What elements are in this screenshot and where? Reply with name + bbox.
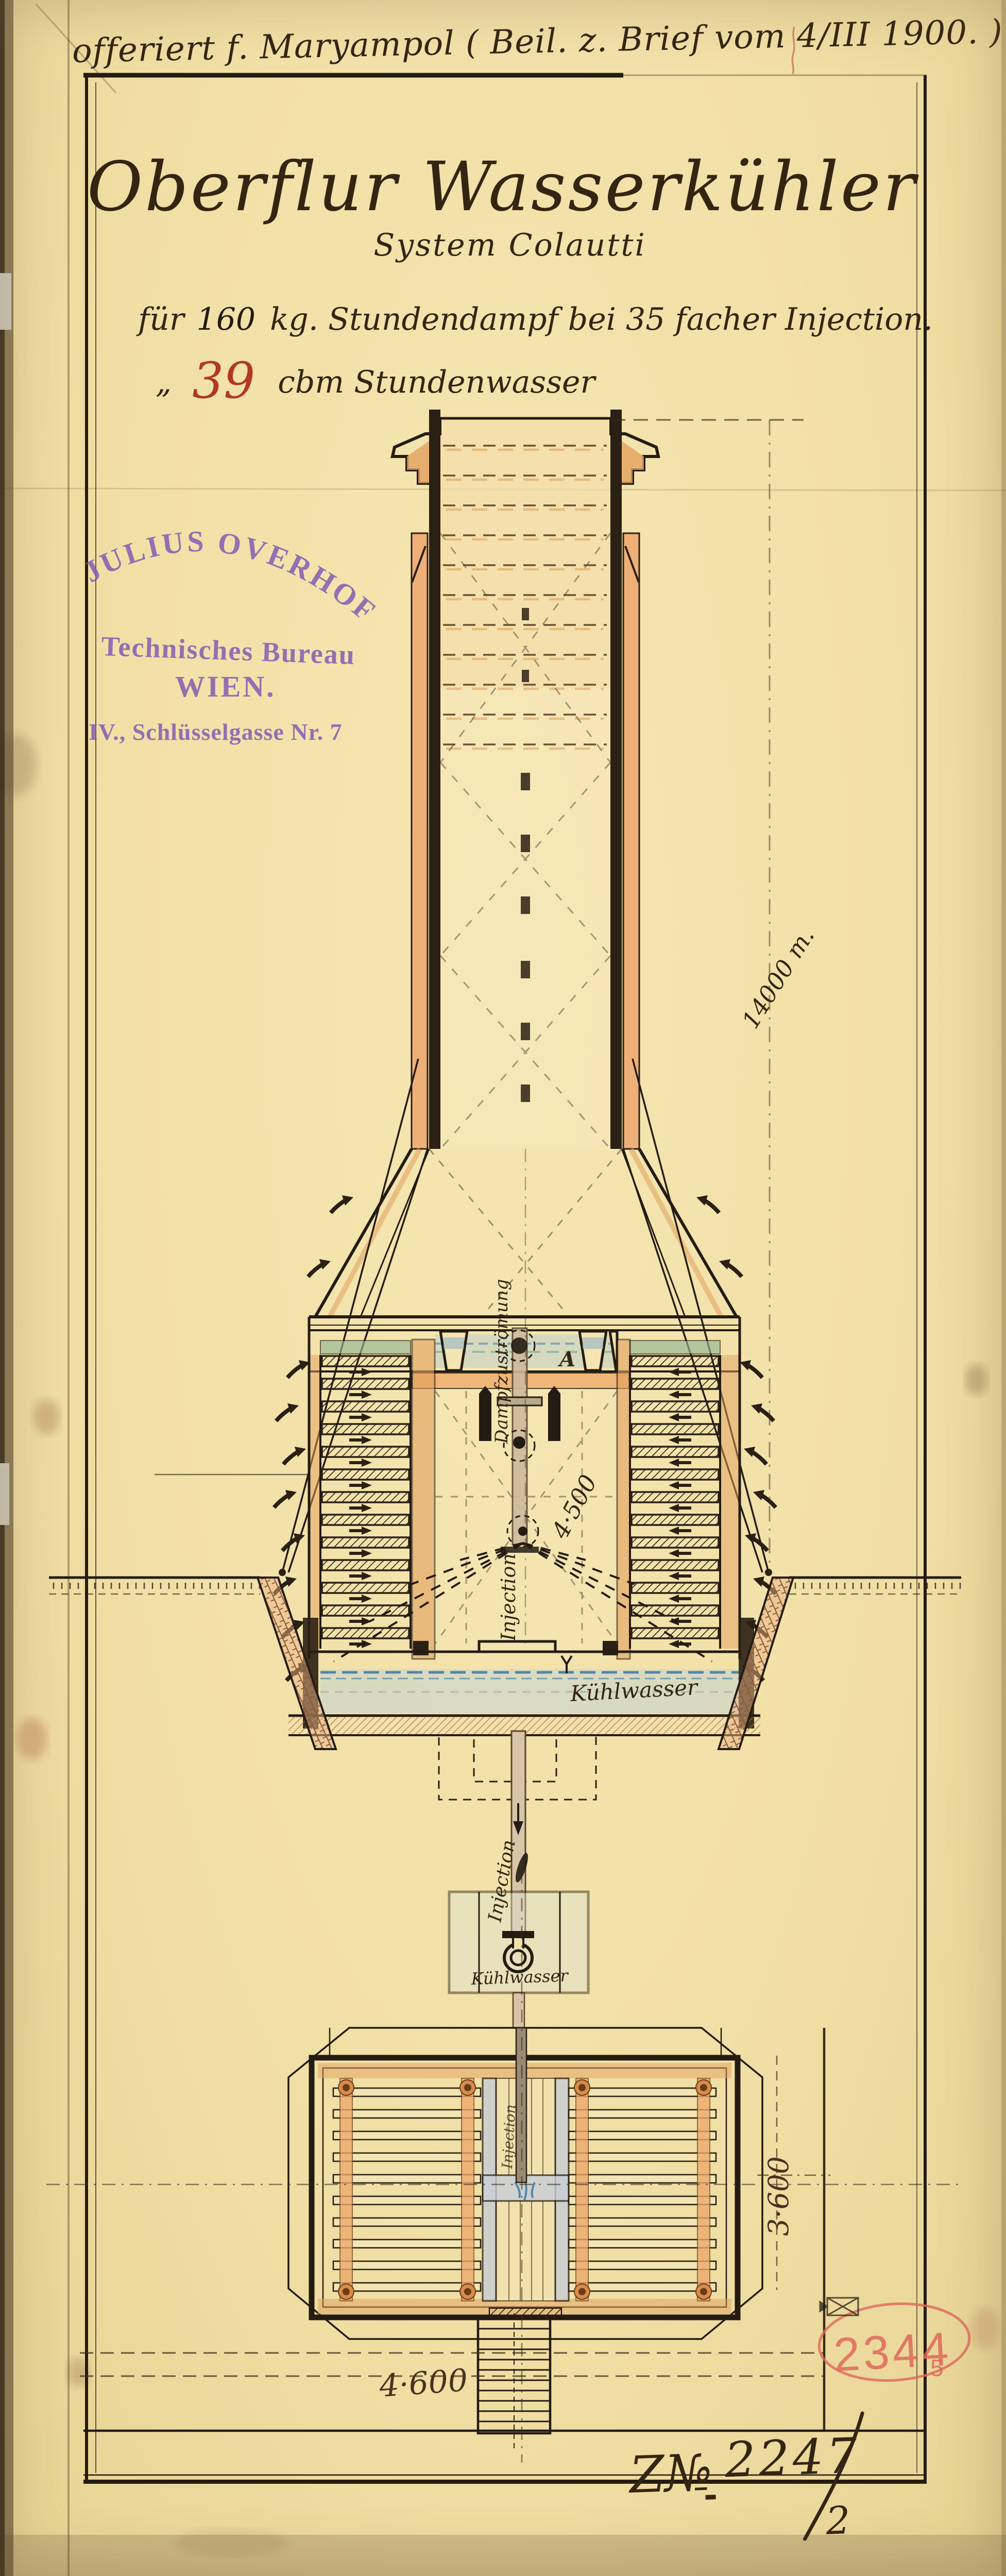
spec-line-2: „39cbm Stundenwasser [156,352,597,410]
maker-stamp-line4: IV., Schlüsselgasse Nr. 7 [89,719,343,745]
cooler-box [155,1317,740,1662]
label-injection-spray: Injection [497,1553,520,1641]
spec2-rest: cbm Stundenwasser [278,364,596,400]
page-subtitle: System Colautti [373,227,646,263]
spec-line-1: für160kg. Stundendampf bei 35 facher Inj… [136,301,933,337]
label-plan-depth: 3·600 [762,2156,795,2236]
drawing-number-prefix: Z№ [627,2443,713,2505]
spec1-rest: kg. Stundendampf bei 35 facher Injection… [270,301,933,337]
drawing-number-value: 2247 [723,2428,861,2488]
inlet-box [449,1892,588,2028]
plan-slat-bank-left [332,2078,482,2301]
label-plan-width: 4·600 [378,2362,469,2404]
top-annotation: offeriert f. Maryampol ( Beil. z. Brief … [72,13,1003,71]
drawing-number: Z№ 2247 2 [626,2413,866,2550]
technical-drawing: Dampfzuströmung Injection 4·500 Kühlwass… [0,0,1006,2576]
label-steam-pipe: Dampfzuströmung [491,1279,512,1444]
registry-stamp: 2344 5 [816,2298,972,2385]
chimney [393,410,658,1149]
page-title: Oberflur Wasserkühler [87,147,919,227]
label-height-note: 14000 m. [737,923,820,1033]
header: offeriert f. Maryampol ( Beil. z. Brief … [72,13,1003,410]
label-inlet-water: Kühlwasser [470,1965,569,1989]
maker-stamp-line2: Technisches Bureau [101,631,356,670]
spec2-value: 39 [192,352,255,410]
label-section-marker: A [557,1347,575,1371]
maker-stamp-line3: WIEN. [175,670,276,703]
scanned-drawing-sheet: Dampfzuströmung Injection 4·500 Kühlwass… [0,0,1006,2576]
louver-stack-left [309,1317,435,1659]
label-plan-feed-pipe: Injection [499,2104,519,2170]
spec2-prefix: „ [156,364,172,400]
plan-slat-bank-right [568,2078,717,2301]
drawing-number-sheet: 2 [825,2498,851,2544]
registry-suffix: 5 [930,2354,944,2381]
spec1-value: 160 [197,301,256,337]
louver-stack-right [603,1317,740,1659]
spec1-prefix: für [136,301,186,337]
check-mark-box [820,2298,858,2315]
